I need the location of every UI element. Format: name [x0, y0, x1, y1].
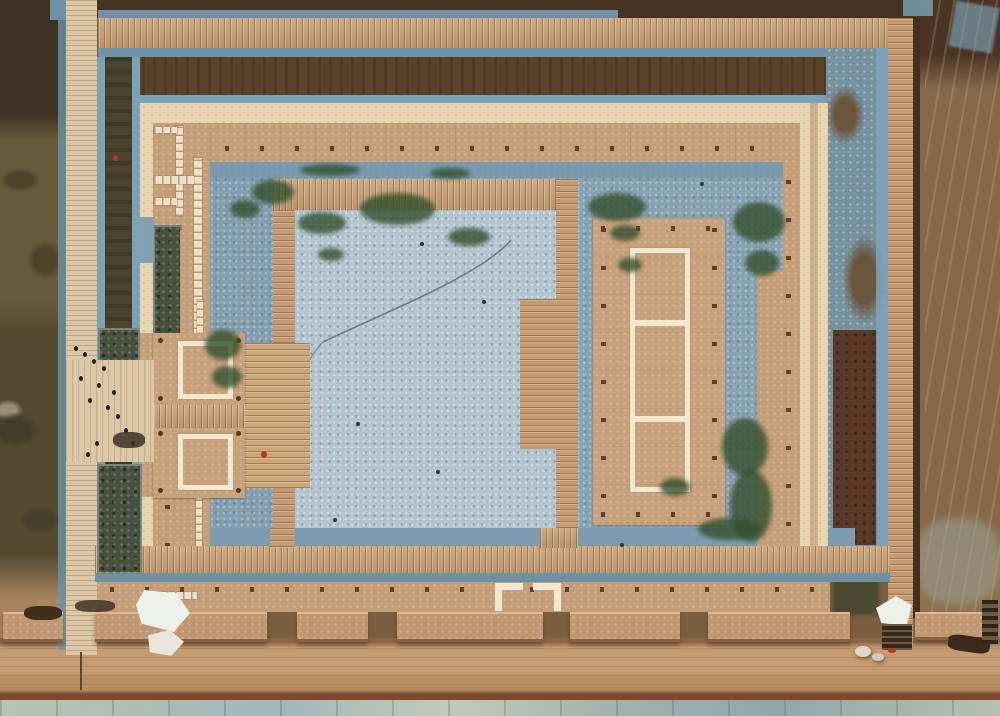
east-berm-excavation: [833, 330, 877, 545]
vegetation-patch: [360, 193, 435, 225]
wall-east-edge: [800, 103, 828, 612]
gravel-speck: [700, 182, 704, 186]
visitor: [92, 359, 96, 364]
vegetation-patch: [698, 518, 760, 540]
kerb-joints: [0, 700, 1000, 716]
east-hall-foundation-outline: [630, 248, 690, 492]
east-hall-postholes-east: [712, 228, 717, 520]
vegetation-patch: [610, 225, 640, 241]
posthole-dot: [158, 396, 163, 401]
posthole-dot: [236, 431, 241, 436]
east-hall-postholes-south: [601, 512, 717, 517]
gravel-corner-northeast: [903, 0, 933, 16]
north-gravel-line-outer: [98, 48, 890, 57]
wall-south-postholes: [110, 587, 815, 592]
visitor: [74, 346, 78, 351]
west-pit-south: [97, 464, 142, 574]
boardwalk-south: [95, 546, 890, 573]
gravel-speck: [620, 543, 624, 547]
visitor: [79, 376, 83, 381]
boardwalk-east: [888, 18, 913, 648]
gravel-above-north-boardwalk: [98, 10, 618, 18]
red-marker: [888, 648, 896, 653]
visitor: [88, 398, 92, 403]
inner-boardwalk-west-stub: [270, 528, 295, 548]
visitor: [95, 441, 99, 446]
vegetation-patch: [212, 366, 242, 388]
aerial-photo-archaeological-site: [0, 0, 1000, 716]
posthole-dot: [158, 431, 163, 436]
wall-north-edge: [140, 103, 813, 123]
wall-west-gravel-notch: [140, 217, 154, 263]
vegetation-patch: [618, 258, 642, 272]
debris-slabs: [982, 600, 998, 644]
red-figure: [261, 451, 267, 458]
east-hall-foundation-divider: [633, 320, 687, 326]
visitor: [83, 352, 87, 357]
visitor: [97, 383, 101, 388]
visitor: [86, 452, 90, 457]
boardwalk-north: [98, 18, 890, 48]
trace-line: [154, 198, 177, 205]
road-tracks: [0, 648, 1000, 688]
trace-line: [176, 126, 183, 216]
vegetation-patch: [448, 228, 490, 246]
south-wall-block: [397, 612, 543, 642]
gravel-west-of-west-boardwalk: [58, 0, 66, 650]
visitor: [106, 405, 110, 410]
vegetation-patch: [588, 193, 646, 221]
inner-boardwalk-east-stub: [540, 528, 578, 548]
gravel-speck: [356, 422, 360, 426]
inner-boardwalk-east: [556, 179, 578, 548]
visitor: [112, 390, 116, 395]
vegetation-patch: [722, 418, 768, 476]
posthole-dot: [158, 488, 163, 493]
white-sack: [855, 646, 871, 657]
trench-east-of-boardwalk: [913, 18, 920, 618]
east-hall-foundation-divider: [633, 416, 687, 422]
vegetation-patch: [318, 248, 344, 261]
gravel-speck: [420, 242, 424, 246]
west-court-platform: [243, 343, 310, 488]
wall-west-pit: [153, 225, 182, 335]
trace-line: [197, 300, 203, 334]
vegetation-patch: [300, 164, 360, 176]
central-gate-platform: [520, 299, 557, 449]
vegetation-patch: [733, 202, 785, 242]
vegetation-patch: [745, 250, 779, 276]
vegetation-patch: [230, 200, 260, 218]
white-sack: [872, 653, 884, 661]
wall-north-postholes: [225, 146, 785, 151]
gravel-speck: [482, 300, 486, 304]
debris-pile: [75, 600, 115, 612]
gravel-speck: [436, 470, 440, 474]
wall-north-band: [140, 123, 800, 162]
vegetation-patch: [298, 212, 346, 234]
vegetation-patch: [205, 330, 241, 360]
debris-pile: [24, 606, 62, 620]
equipment-block: [882, 624, 912, 650]
posthole-dot: [158, 338, 163, 343]
gravel-corner-patch: [948, 1, 999, 54]
east-hall-postholes-west: [601, 228, 606, 520]
visitor-group: [113, 432, 145, 448]
wall-east-postholes: [786, 180, 791, 555]
south-wall-block: [708, 612, 850, 642]
posthole-dot: [236, 396, 241, 401]
west-gate-boardwalk: [153, 405, 245, 428]
gravel-below-south-boardwalk: [95, 573, 890, 582]
gravel-west-of-east-boardwalk: [876, 48, 888, 548]
visitor: [116, 414, 120, 419]
boardwalk-west-pole: [80, 652, 82, 690]
courtyard-top-border: [155, 162, 800, 178]
trace-line: [154, 176, 194, 184]
west-pit-north: [98, 328, 140, 364]
posthole-dot: [236, 488, 241, 493]
red-figure: [113, 155, 118, 161]
gravel-speck: [333, 518, 337, 522]
field-east-light-patch: [916, 518, 1000, 604]
visitor: [102, 366, 106, 371]
boardwalk-west: [66, 0, 97, 655]
south-wall-block: [297, 612, 368, 642]
south-gate-marker: [554, 583, 561, 611]
vegetation-patch: [660, 478, 690, 496]
south-wall-block: [570, 612, 680, 642]
trace-line: [154, 127, 177, 133]
south-gate-marker: [495, 583, 502, 611]
vegetation-patch: [252, 180, 294, 204]
vegetation-patch: [430, 168, 470, 179]
west-gate-foundation-south: [178, 434, 233, 490]
